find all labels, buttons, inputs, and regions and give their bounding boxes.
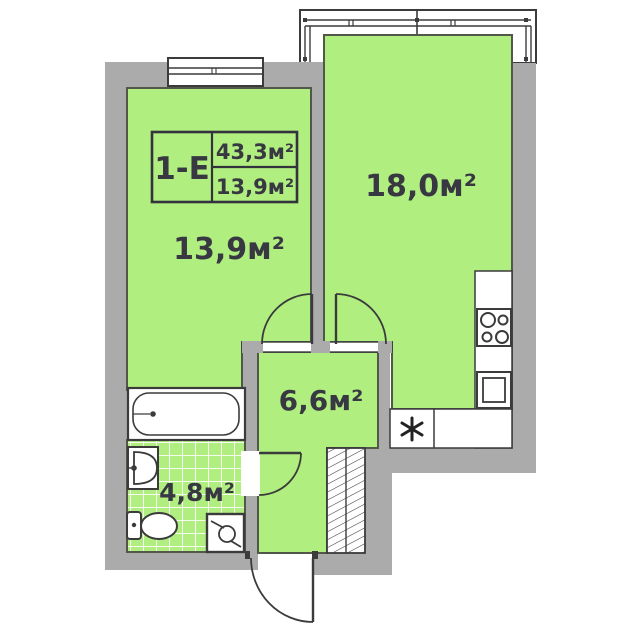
washing-machine-icon: [207, 514, 244, 552]
wall-bottom-left: [105, 552, 248, 570]
living-room-label: 13,9м²: [173, 232, 285, 267]
wall-hall-right: [378, 342, 390, 448]
unit-code: 1-E: [154, 151, 210, 187]
hallway-label: 6,6м²: [279, 384, 364, 417]
entrance-jamb-left: [245, 551, 250, 559]
wall-right: [512, 63, 536, 473]
floor-plan: 1-E 43,3м² 13,9м² 13,9м² 18,0м² 6,6м² 4,…: [0, 0, 640, 640]
unit-total-area: 43,3м²: [216, 140, 294, 164]
bathtub-icon: [128, 388, 245, 440]
window: [168, 58, 263, 86]
entrance-door: [251, 558, 313, 622]
wardrobe-hatch: [327, 448, 365, 553]
toilet-icon: [127, 512, 177, 539]
unit-living-area: 13,9м²: [216, 175, 294, 199]
kitchen-living-room-label: 18,0м²: [365, 169, 477, 204]
kitchen-sink-icon: [477, 372, 511, 408]
stove-icon: [477, 309, 511, 346]
washbasin-icon: [128, 447, 158, 489]
wall-left: [105, 62, 127, 570]
wall-bottom-right: [390, 448, 536, 473]
bathroom-door-opening: [241, 451, 260, 496]
floor-plan-page: 1-E 43,3м² 13,9м² 13,9м² 18,0м² 6,6м² 4,…: [0, 0, 640, 640]
wall-bottom-center: [313, 553, 392, 575]
bathroom-label: 4,8м²: [159, 478, 235, 507]
hallway-top-wall: [242, 341, 392, 353]
entrance-jamb-right: [312, 551, 318, 559]
